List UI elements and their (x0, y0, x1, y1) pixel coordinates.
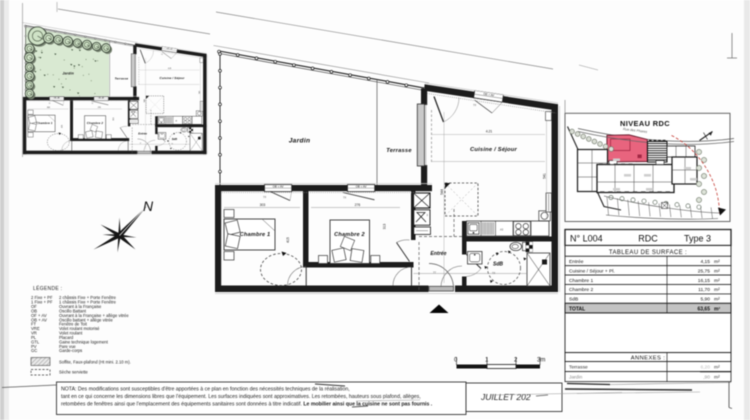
svg-text:3m: 3m (537, 358, 545, 364)
svg-text:25,75: 25,75 (698, 268, 711, 274)
svg-text:Terrasse: Terrasse (569, 365, 588, 371)
svg-text:Soffite, Faux-plafond (Ht mini: Soffite, Faux-plafond (Ht mini. 2.10 m). (59, 360, 131, 365)
svg-text:Sèche serviette: Sèche serviette (59, 370, 89, 375)
svg-text:m²: m² (714, 297, 720, 303)
svg-text:m²: m² (714, 278, 720, 284)
svg-text:retombées de fenêtres ainsi qu: retombées de fenêtres ainsi que l'emplac… (61, 402, 433, 408)
svg-text:16,15: 16,15 (698, 278, 711, 284)
svg-text:N: N (143, 198, 154, 214)
svg-text:GC: GC (31, 348, 37, 353)
svg-text:TOTAL: TOTAL (569, 306, 585, 312)
svg-text:4,15: 4,15 (700, 259, 710, 265)
svg-text:m²: m² (714, 365, 720, 371)
svg-text:NOTA: Des modifications sont s: NOTA: Des modifications sont susceptible… (61, 387, 350, 393)
svg-text:63,65: 63,65 (697, 306, 710, 312)
svg-text:Cuisine / Séjour + Pl.: Cuisine / Séjour + Pl. (569, 268, 615, 274)
svg-text:Jardin: Jardin (569, 375, 583, 381)
svg-text:6,20: 6,20 (700, 365, 710, 371)
svg-text:m²: m² (714, 268, 720, 274)
svg-text:m²: m² (714, 287, 720, 293)
svg-text:Entrée: Entrée (569, 259, 584, 265)
svg-text:Chambre 1: Chambre 1 (569, 278, 593, 284)
svg-text:m²: m² (714, 259, 720, 265)
svg-text:TABLEAU DE SURFACE :: TABLEAU DE SURFACE : (609, 250, 687, 256)
svg-text:SdB: SdB (569, 297, 578, 303)
svg-text:11,70: 11,70 (698, 287, 710, 293)
svg-text:ANNEXES :: ANNEXES : (631, 356, 666, 362)
svg-text:,90: ,90 (703, 375, 710, 381)
svg-text:Chambre 2: Chambre 2 (569, 287, 593, 293)
svg-text:JUILLET 202: JUILLET 202 (480, 392, 531, 402)
svg-text:N° L004: N° L004 (570, 234, 603, 244)
svg-text:tant en ce qui concerne les di: tant en ce qui concerne les dimensions l… (61, 394, 421, 400)
svg-text:RDC: RDC (638, 234, 658, 244)
svg-text:Type 3: Type 3 (684, 234, 711, 244)
svg-text:LÉGENDE :: LÉGENDE : (33, 285, 62, 292)
svg-text:Garde-corps: Garde-corps (59, 348, 82, 353)
svg-text:m²: m² (714, 375, 720, 381)
svg-text:m²: m² (714, 306, 720, 312)
svg-text:5,90: 5,90 (700, 297, 710, 303)
